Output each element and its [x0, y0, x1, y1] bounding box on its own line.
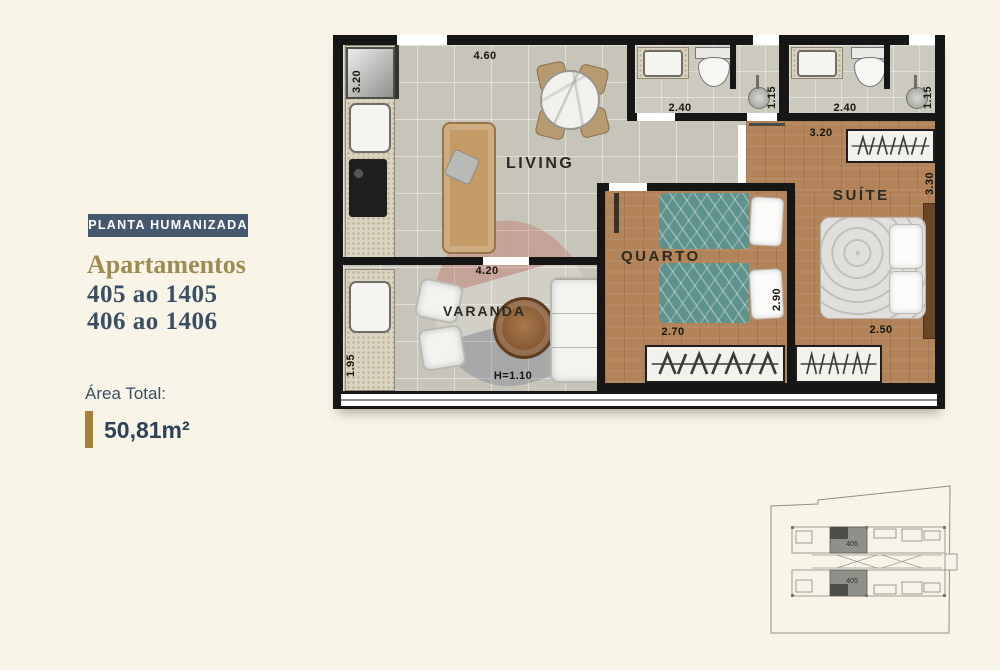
dim-varanda-width: 4.20: [467, 265, 507, 277]
wall-segment: [779, 35, 789, 121]
varanda-chair-icon: [417, 324, 467, 372]
keyplan-drawing: 406 405: [752, 470, 992, 665]
bath2-shower-arm: [914, 75, 917, 89]
unit-range-1: 405 ao 1405: [87, 281, 218, 309]
door-opening: [637, 113, 675, 121]
highlighted-unit-bottom-dark: [830, 584, 848, 596]
highlighted-unit-top-dark: [830, 527, 848, 539]
suite-wardrobe-icon: [846, 129, 935, 163]
dim-living-width: 4.60: [465, 50, 505, 62]
kitchen-sink-icon: [349, 103, 391, 153]
window-opening: [909, 35, 935, 45]
wall-segment: [787, 191, 795, 383]
dim-quarto-depth: 2.90: [771, 277, 783, 311]
wall-segment: [730, 45, 736, 89]
floor-plan: X 3.20 1.95: [333, 35, 945, 409]
wall-segment: [884, 45, 890, 89]
window-opening: [753, 35, 779, 45]
suite-door-leaf: [749, 123, 785, 126]
varanda-label: VARANDA: [443, 303, 526, 319]
accent-bar: [85, 411, 93, 448]
stove-icon: [349, 159, 387, 217]
wall-segment: [597, 183, 605, 391]
keyplan: 406 405: [752, 470, 992, 665]
suite-pillow-icon: [889, 224, 923, 269]
door-opening: [609, 183, 647, 191]
door-opening: [397, 35, 447, 45]
living-sofa-icon: [442, 122, 496, 254]
dim-quarto-width: 2.70: [653, 326, 693, 338]
dim-bath1-depth: 1.15: [766, 79, 778, 109]
plan-type-badge: PLANTA HUMANIZADA: [88, 214, 248, 237]
service-sink-icon: [349, 281, 391, 333]
entry-door-leaf: [395, 45, 399, 99]
dim-varanda-rail-height: H=1.10: [488, 370, 538, 382]
unit-top-label: 406: [846, 541, 858, 548]
area-total-label: Área Total:: [85, 384, 166, 404]
unit-range-2: 406 ao 1406: [87, 308, 218, 336]
site-outline: [771, 486, 950, 633]
bath2-sink-icon: [797, 50, 837, 77]
quarto-door-leaf: [614, 193, 619, 233]
door-opening: [483, 257, 529, 265]
dim-kitchen-depth: 3.20: [351, 51, 363, 93]
suite-pillow-icon: [889, 271, 923, 314]
suite-closet-icon: [795, 345, 882, 383]
stairs-icon: [837, 555, 922, 568]
building-core: [945, 554, 957, 570]
bath1-shower-arm: [756, 75, 759, 89]
wall-segment: [343, 257, 483, 265]
wall-segment: [935, 35, 945, 391]
dining-table-icon: [540, 70, 600, 130]
dim-suite-wardrobe: 3.20: [803, 127, 839, 139]
door-opening: [738, 125, 746, 183]
dim-service-depth: 1.95: [345, 331, 357, 377]
suite-label: SUÍTE: [833, 187, 890, 204]
twin-bed-blanket-icon: [659, 263, 749, 323]
living-label: LIVING: [506, 155, 574, 173]
wall-segment: [333, 35, 343, 391]
dim-bath2-depth: 1.15: [922, 79, 934, 109]
wall-segment: [937, 391, 945, 409]
wall-segment: [627, 35, 635, 121]
dim-suite-depth: 3.30: [924, 161, 936, 195]
wall-segment: [597, 383, 945, 391]
area-total-value: 50,81m²: [104, 417, 190, 444]
door-opening: [747, 113, 777, 121]
balcony-railing: [333, 391, 945, 409]
dim-bath2-width: 2.40: [825, 102, 865, 114]
page-title: Apartamentos: [87, 250, 246, 280]
twin-bed-blanket-icon: [659, 193, 749, 249]
dim-bath1-width: 2.40: [660, 102, 700, 114]
quarto-label: QUARTO: [621, 248, 701, 265]
dim-suite-width: 2.50: [861, 324, 901, 336]
wall-segment: [529, 257, 605, 265]
twin-bed-pillow-icon: [749, 196, 785, 247]
wall-segment: [333, 391, 341, 409]
quarto-closet-icon: [645, 345, 785, 383]
varanda-sofa-icon: [550, 277, 604, 383]
bath1-sink-icon: [643, 50, 683, 77]
unit-bottom-label: 405: [846, 578, 858, 585]
